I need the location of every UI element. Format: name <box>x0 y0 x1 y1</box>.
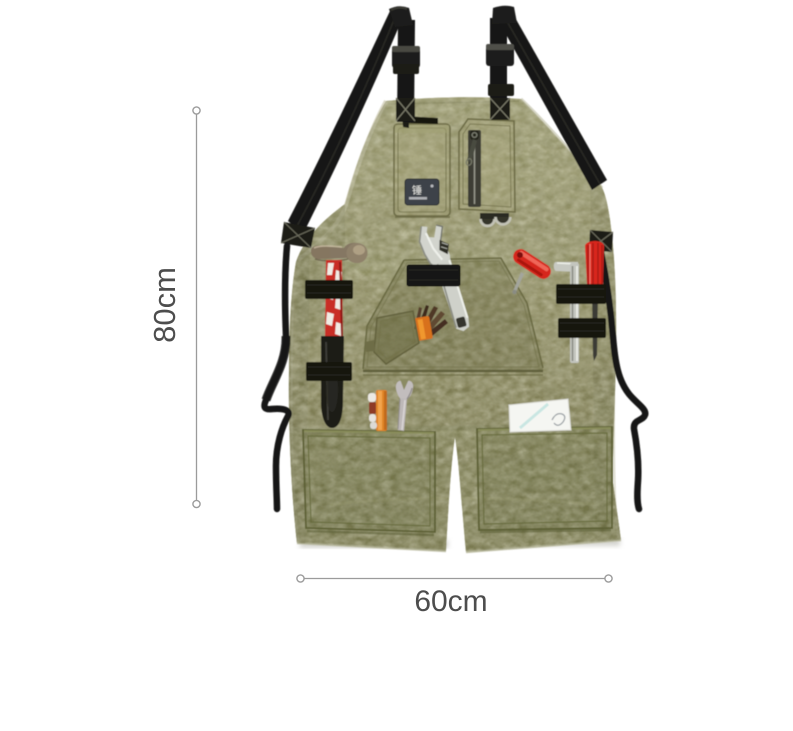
svg-text:80cm: 80cm <box>147 267 182 343</box>
svg-text:锤: 锤 <box>412 184 422 197</box>
svg-text:60cm: 60cm <box>414 585 487 618</box>
